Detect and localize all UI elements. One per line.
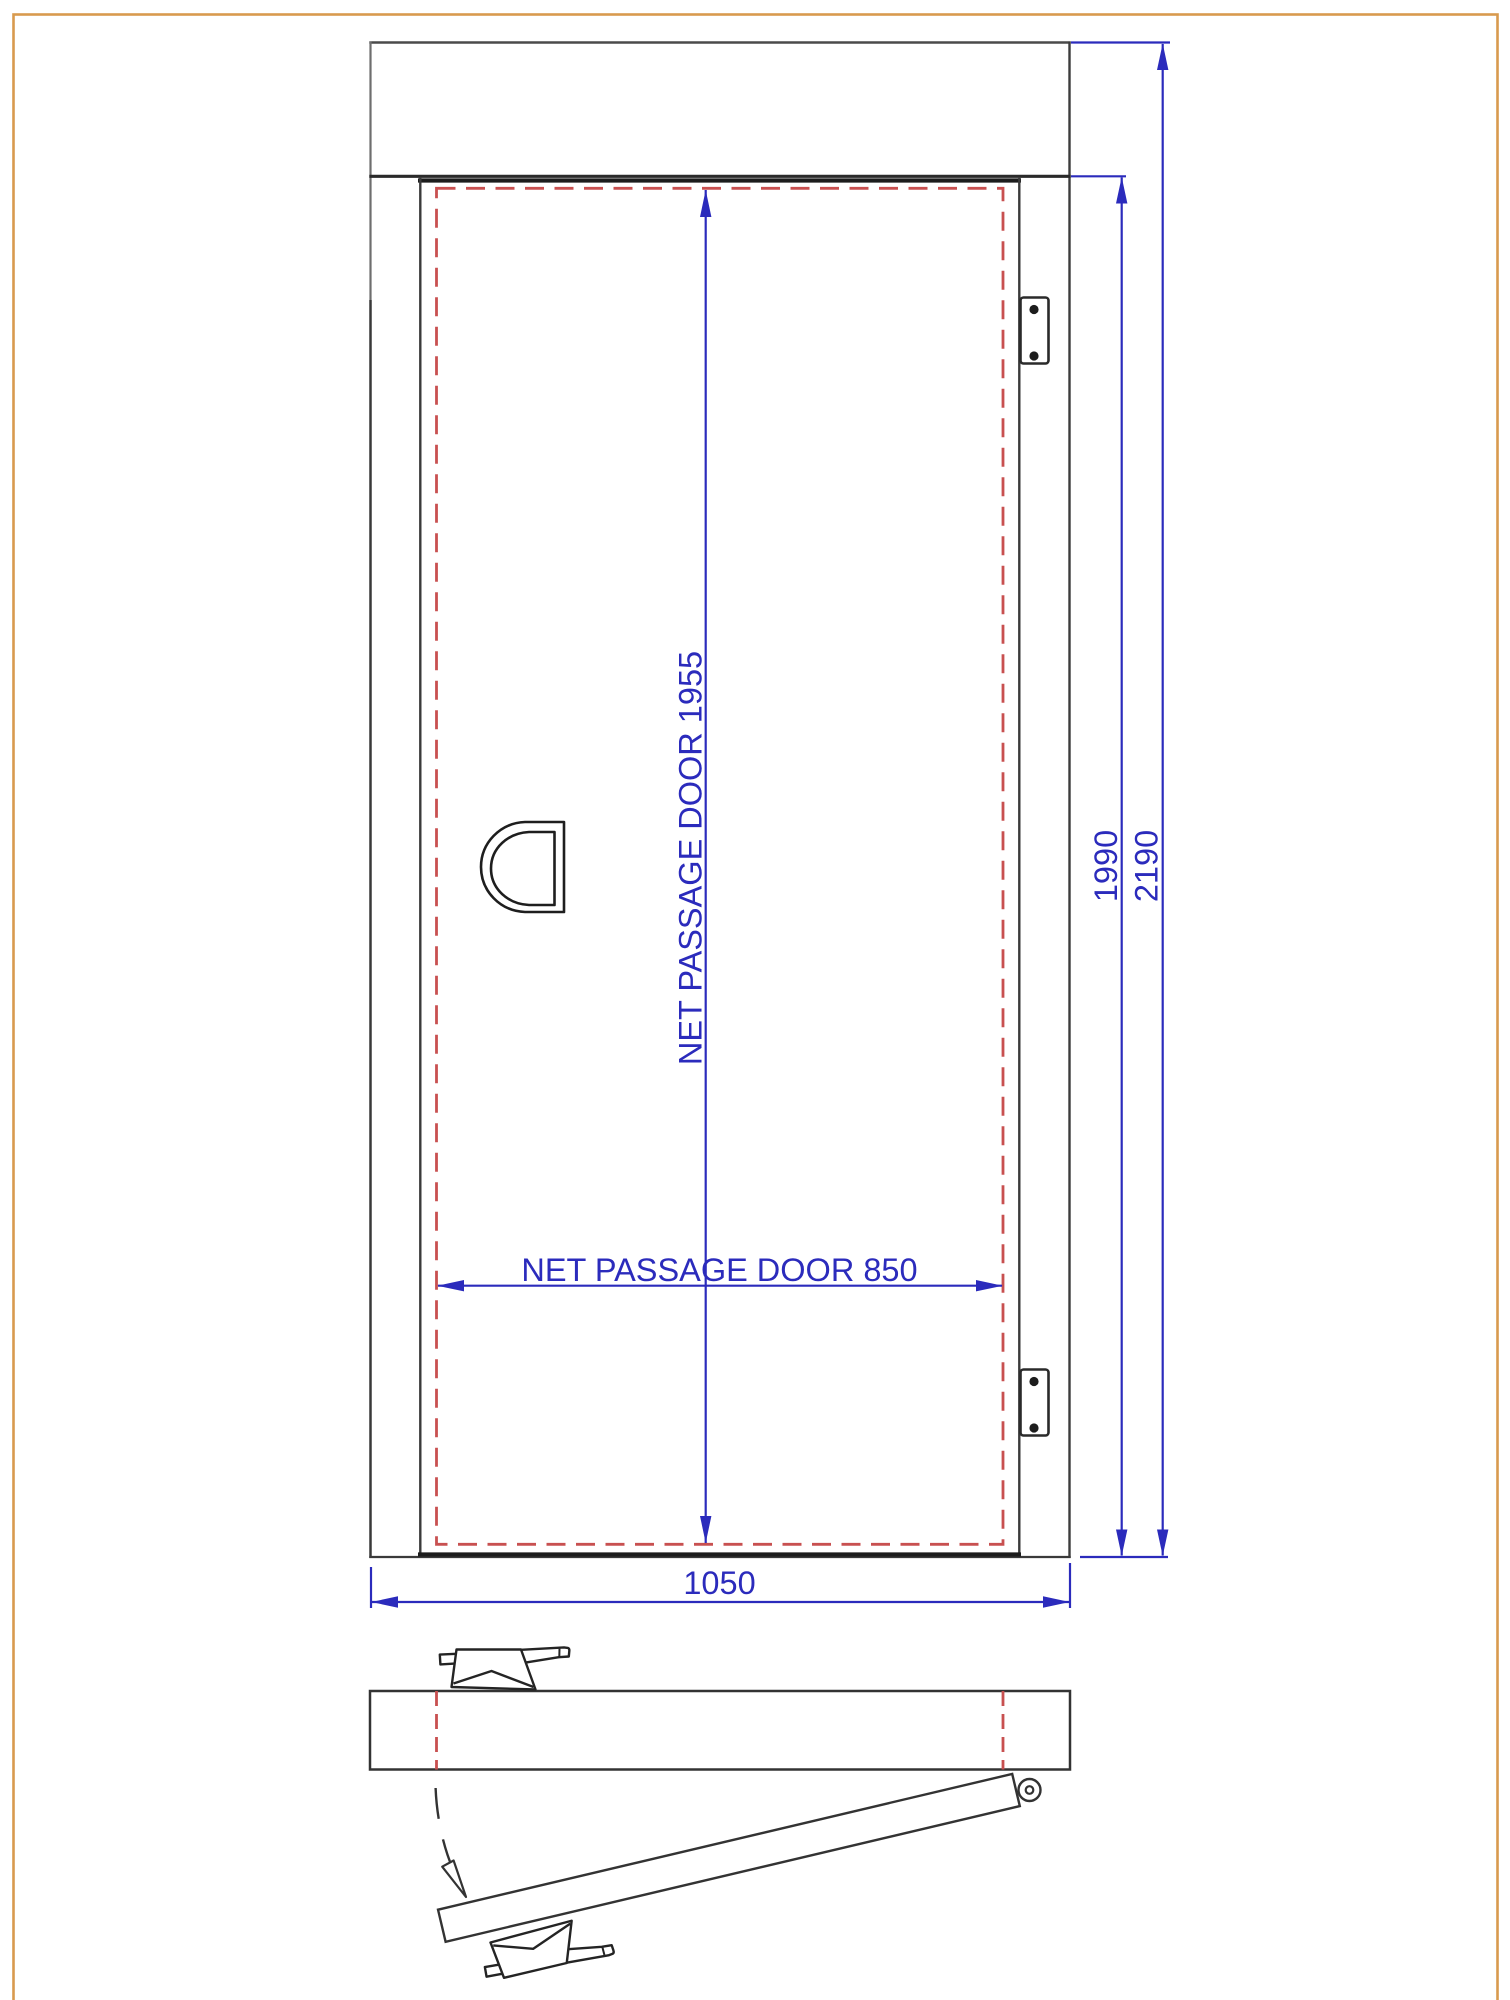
svg-text:1990: 1990: [1088, 830, 1124, 902]
svg-text:NET PASSAGE DOOR 1955: NET PASSAGE DOOR 1955: [673, 651, 709, 1065]
svg-text:1050: 1050: [683, 1565, 755, 1601]
svg-text:2190: 2190: [1129, 830, 1165, 902]
svg-text:NET PASSAGE DOOR 850: NET PASSAGE DOOR 850: [521, 1252, 917, 1288]
